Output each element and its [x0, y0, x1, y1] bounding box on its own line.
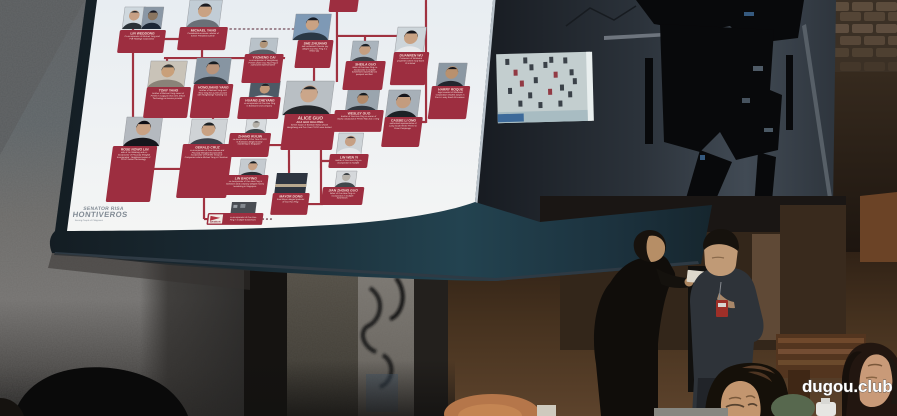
svg-text:of Guo Hua Ping: of Guo Hua Ping [282, 201, 299, 203]
svg-text:CASSIE LI ONG: CASSIE LI ONG [391, 119, 417, 123]
svg-text:HUANG ZHEYANG: HUANG ZHEYANG [245, 99, 275, 103]
svg-text:laundering in Singapore: laundering in Singapore [238, 143, 262, 146]
svg-text:YUZHENG CAI: YUZHENG CAI [252, 56, 276, 60]
svg-text:in Bambans land company: in Bambans land company [246, 105, 273, 107]
svg-text:LIN WEDDONG: LIN WEDDONG [130, 32, 155, 36]
svg-text:laundering in Singapore: laundering in Singapore [233, 185, 257, 188]
svg-text:DUANREN WU: DUANREN WU [399, 54, 423, 58]
svg-text:Companies where Michael Yang i: Companies where Michael Yang is Chairman [185, 156, 229, 159]
svg-text:JIAN ZHONG GUO: JIAN ZHONG GUO [328, 189, 358, 193]
svg-text:incorporator in multiple: incorporator in multiple [337, 161, 360, 164]
svg-text:Technology as service provider: Technology as service provider [153, 97, 183, 100]
svg-text:MICHAEL YANG: MICHAEL YANG [190, 29, 216, 33]
svg-text:fellow spy: fellow spy [309, 51, 320, 53]
svg-text:HARRY ROQUE: HARRY ROQUE [438, 88, 464, 92]
svg-text:LIN BAOYING: LIN BAOYING [235, 177, 258, 181]
svg-text:ID is listed: ID is listed [405, 62, 416, 65]
svg-text:WESLEY GUO: WESLEY GUO [347, 111, 371, 115]
svg-text:authorized representative: authorized representative [251, 64, 277, 67]
svg-text:POGO Jetson Technology: POGO Jetson Technology [121, 158, 147, 161]
svg-text:ZHANG RUIJIN: ZHANG RUIJIN [238, 135, 263, 139]
svg-text:businesses: businesses [337, 198, 348, 200]
svg-text:LIN WEN YI: LIN WEN YI [340, 155, 359, 159]
svg-text:ROSE NOWO LIN: ROSE NOWO LIN [121, 148, 150, 152]
svg-text:SHEILA GUO: SHEILA GUO [355, 62, 377, 66]
svg-text:SHE ZHIJIANG: SHE ZHIJIANG [303, 42, 327, 46]
svg-text:BAMBON: BAMBON [210, 221, 221, 224]
svg-text:Zun Li Lucky South 99 casinos: Zun Li Lucky South 99 casinos [435, 96, 465, 99]
svg-text:HONGJIANG YANG: HONGJIANG YANG [198, 86, 230, 90]
svg-text:MAYOR DONG: MAYOR DONG [279, 194, 303, 198]
svg-text:FvE Holdings Corporation: FvE Holdings Corporation [129, 37, 155, 40]
svg-text:passport and fled: passport and fled [356, 73, 374, 76]
svg-text:GERALD CRUZ: GERALD CRUZ [195, 145, 220, 149]
svg-text:ALICE GUO: ALICE GUO [297, 116, 323, 121]
svg-text:Baofu compound of POGO Hub Zun: Baofu compound of POGO Hub Zun Li Ong [337, 118, 380, 120]
svg-text:dugou.club: dugou.club [802, 377, 893, 396]
svg-text:Hongsheng and Zun Yuan POGO we: Hongsheng and Zun Yuan POGO were busted [287, 126, 333, 129]
svg-text:HONTIVEROS: HONTIVEROS [72, 210, 128, 219]
svg-text:AKA GUO HUA PING: AKA GUO HUA PING [296, 120, 324, 124]
svg-text:TONY YANG: TONY YANG [159, 89, 179, 93]
svg-text:Ping in multiple businesses: Ping in multiple businesses [230, 219, 256, 222]
svg-text:former President Duterte: former President Duterte [191, 34, 216, 37]
svg-text:co-incorporator of Guo Hua: co-incorporator of Guo Hua [230, 216, 257, 219]
svg-text:Serving People of Philippines: Serving People of Philippines [75, 219, 103, 222]
svg-text:with Hongshengs Yuzheng Cai: with Hongshengs Yuzheng Cai [197, 94, 227, 97]
svg-text:Porac Pampanga: Porac Pampanga [394, 127, 412, 130]
